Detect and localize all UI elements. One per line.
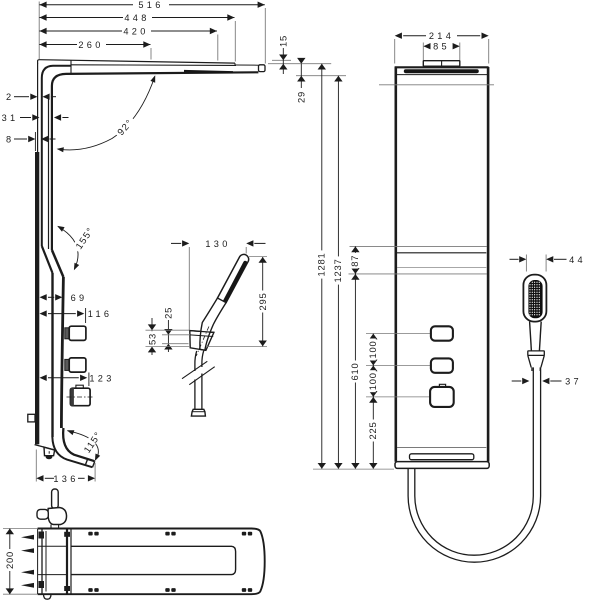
svg-text:100: 100 [367,372,378,390]
svg-text:610: 610 [349,362,360,380]
svg-text:85: 85 [433,42,450,52]
svg-text:87: 87 [349,255,360,267]
svg-text:8: 8 [6,135,11,145]
svg-text:31: 31 [2,113,19,123]
svg-text:295: 295 [257,292,268,310]
svg-text:69: 69 [71,293,88,303]
svg-text:420: 420 [123,27,148,37]
svg-text:1237: 1237 [332,258,343,282]
svg-text:123: 123 [89,373,114,383]
svg-text:37: 37 [565,377,582,387]
svg-text:29: 29 [296,91,307,103]
svg-text:53: 53 [146,333,157,345]
svg-text:2: 2 [6,92,11,102]
svg-text:25: 25 [162,307,173,319]
svg-text:225: 225 [367,421,378,439]
svg-text:130: 130 [205,239,230,249]
svg-text:136: 136 [53,474,78,484]
svg-text:116: 116 [88,309,113,319]
svg-text:100: 100 [367,340,378,358]
svg-text:516: 516 [138,0,163,10]
svg-text:214: 214 [429,31,454,41]
svg-text:200: 200 [4,551,15,569]
svg-text:448: 448 [124,13,149,23]
svg-text:260: 260 [78,40,103,50]
svg-text:1281: 1281 [315,252,326,276]
svg-text:15: 15 [278,35,289,47]
svg-text:44: 44 [569,255,586,265]
